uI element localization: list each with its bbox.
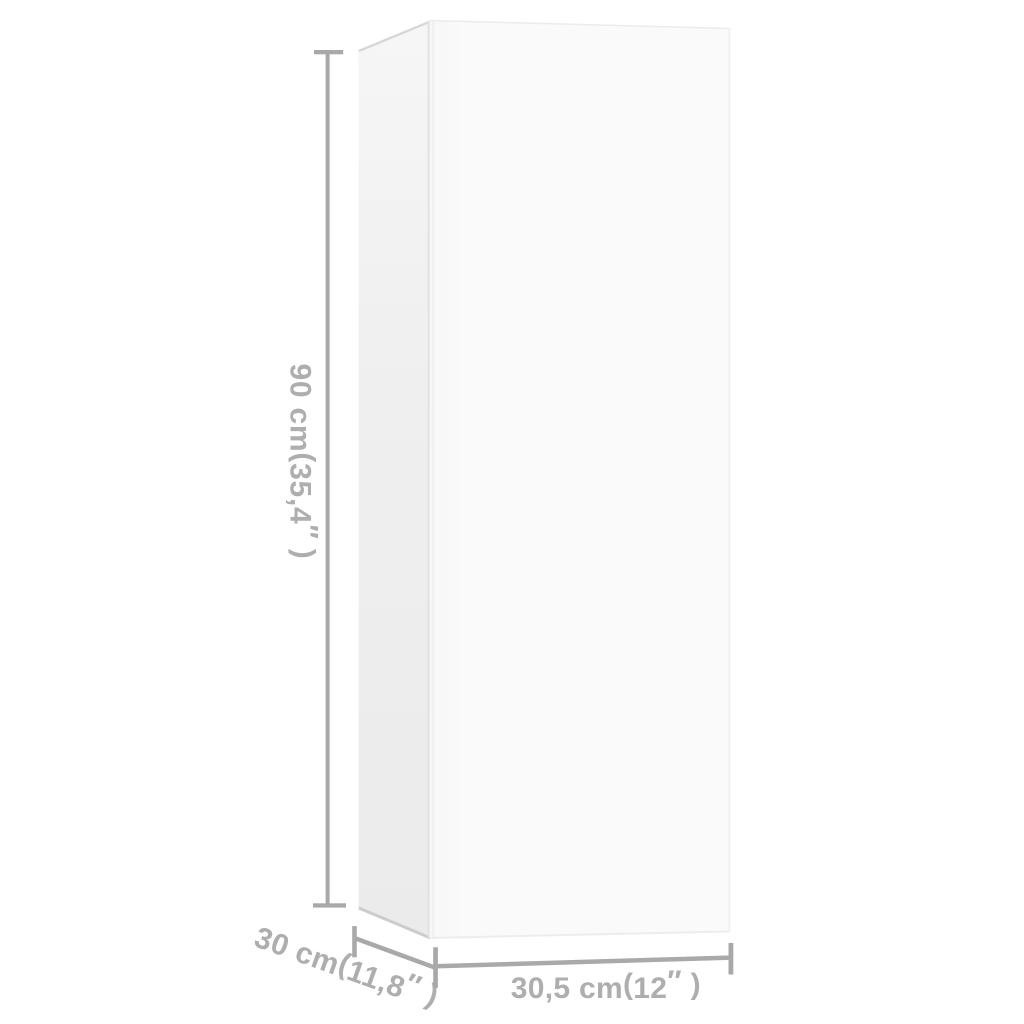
svg-text:90 cm(35,4″ ): 90 cm(35,4″ ) (284, 364, 324, 560)
svg-text:30,5 cm(12″ ): 30,5 cm(12″ ) (511, 965, 701, 1005)
